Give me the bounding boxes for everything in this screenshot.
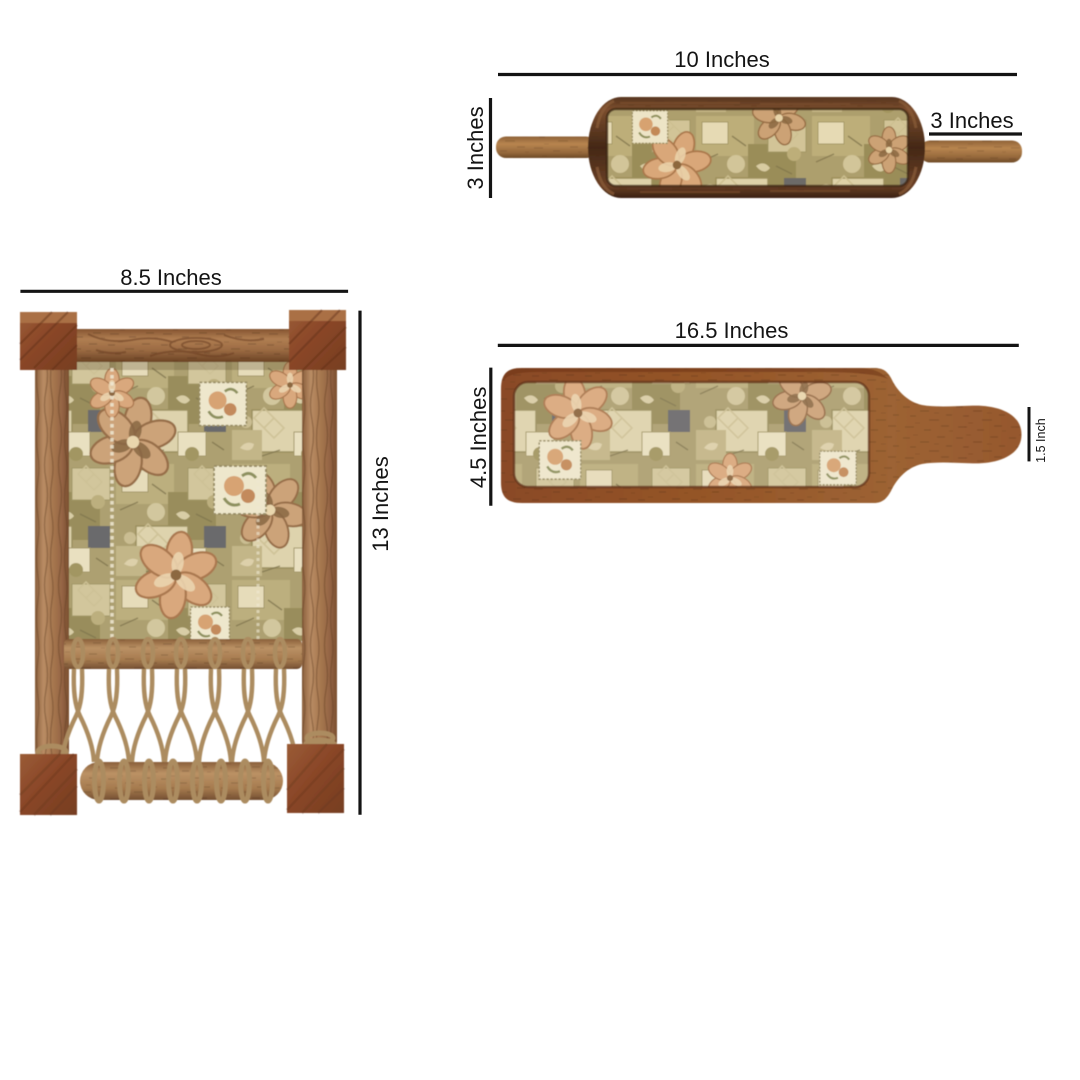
svg-text:3 Inches: 3 Inches — [930, 108, 1013, 133]
svg-text:16.5 Inches: 16.5 Inches — [675, 318, 789, 343]
svg-text:8.5 Inches: 8.5 Inches — [120, 265, 222, 290]
svg-text:10 Inches: 10 Inches — [674, 47, 769, 72]
svg-text:13 Inches: 13 Inches — [368, 456, 393, 551]
svg-text:1.5 Inch: 1.5 Inch — [1034, 418, 1048, 463]
svg-text:4.5 Inches: 4.5 Inches — [466, 387, 491, 489]
svg-text:3 Inches: 3 Inches — [463, 106, 488, 189]
